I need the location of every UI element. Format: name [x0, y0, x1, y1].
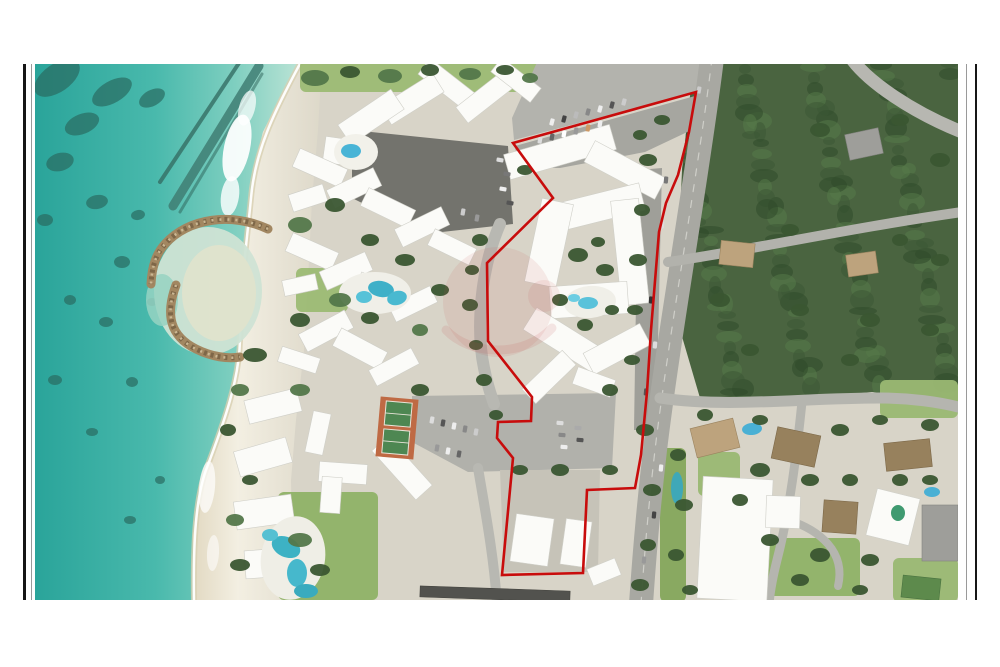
page: [0, 0, 1000, 667]
right-inner-rule: [966, 64, 967, 600]
left-border-rule: [23, 64, 26, 600]
right-border-rule: [975, 64, 978, 600]
left-inner-rule: [31, 64, 32, 600]
aerial-photo: [35, 64, 958, 600]
aerial-photo-svg: [35, 64, 958, 600]
